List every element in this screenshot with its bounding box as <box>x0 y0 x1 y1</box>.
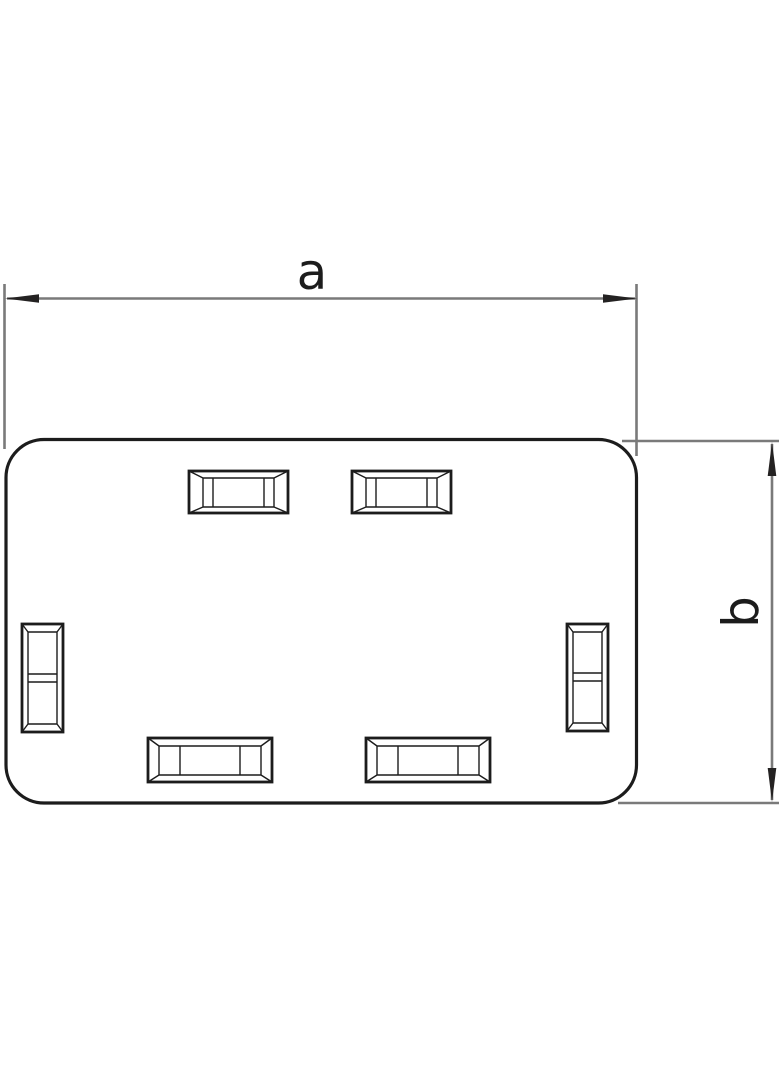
knockout-slot-bottom-left <box>148 738 272 782</box>
cover-plate <box>6 440 637 804</box>
slot-inner-detail <box>352 471 451 513</box>
cover-plate-outline <box>6 440 637 804</box>
slot-inner-detail <box>148 738 272 782</box>
dimension-a-arrow-right-icon <box>603 294 637 303</box>
dimension-labels: a b <box>297 243 770 628</box>
dimension-b-label: b <box>712 596 770 628</box>
slot-inner-detail <box>366 738 490 782</box>
slot-inner-detail <box>567 624 608 731</box>
technical-drawing: a b <box>0 0 784 1066</box>
dimension-a-arrow-left-icon <box>5 294 39 303</box>
knockout-slot-top-right <box>352 471 451 513</box>
knockout-slot-top-left <box>189 471 288 513</box>
drawing-page: a b <box>0 0 784 1066</box>
slot-inner-detail <box>189 471 288 513</box>
knockout-slot-left <box>22 624 63 732</box>
dimension-a <box>5 284 637 456</box>
dimension-a-label: a <box>297 243 328 301</box>
knockout-slot-right <box>567 624 608 731</box>
slot-inner-detail <box>22 624 63 732</box>
dimension-b-arrow-up-icon <box>768 442 777 476</box>
knockout-slot-bottom-right <box>366 738 490 782</box>
dimension-b-arrow-down-icon <box>768 768 777 802</box>
